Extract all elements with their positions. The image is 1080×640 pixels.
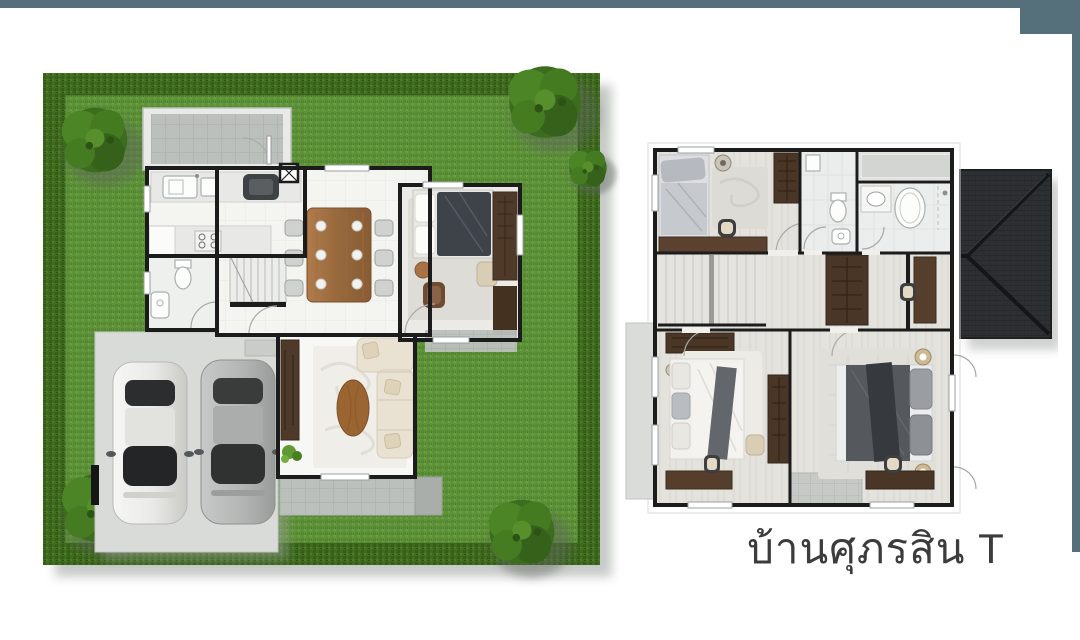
laundry-terrace	[143, 108, 291, 170]
bathroom-1	[800, 150, 857, 253]
page-edge-right-bar	[1072, 0, 1080, 552]
rear-terrace-dark	[415, 477, 442, 515]
page-edge-top-bar	[0, 0, 1080, 8]
kitchen-sink-icon	[163, 176, 197, 198]
balcony-ledge	[860, 153, 952, 179]
chair	[746, 435, 764, 455]
desk	[666, 471, 732, 489]
hip-roof	[960, 170, 1058, 350]
fridge-icon	[149, 226, 175, 256]
staircase-ground	[230, 256, 286, 307]
gate-post	[91, 465, 99, 505]
sink-icon	[867, 192, 885, 206]
ground-floor-plan	[25, 40, 620, 620]
stair-rail	[709, 255, 714, 325]
bedroom-ground	[405, 190, 517, 334]
desk	[866, 471, 934, 489]
tv-console	[281, 340, 299, 440]
plan-title: บ้านศุภรสิน T	[718, 516, 1034, 582]
page-edge-corner-block	[1020, 0, 1080, 34]
rear-terrace	[280, 477, 420, 515]
side-balcony	[626, 323, 656, 499]
coffee-table	[337, 380, 369, 436]
dressing-desk	[914, 257, 936, 323]
toilet-icon	[830, 200, 846, 222]
shower-head-icon	[943, 191, 948, 196]
desk	[659, 237, 767, 252]
door-mat	[245, 340, 279, 356]
tv-cabinet	[493, 286, 517, 334]
basin-icon	[832, 229, 850, 244]
dresser	[666, 333, 734, 353]
bathroom-2	[857, 182, 952, 253]
basin-icon	[151, 292, 169, 318]
car-silver	[106, 362, 194, 524]
upper-floor-plan	[618, 135, 1058, 515]
toilet-icon	[175, 267, 191, 289]
car-gray	[194, 360, 282, 524]
floorplan-brochure: { "title": { "label": "บ้านศุภรสิน T" },…	[0, 0, 1080, 640]
rug	[712, 167, 768, 229]
